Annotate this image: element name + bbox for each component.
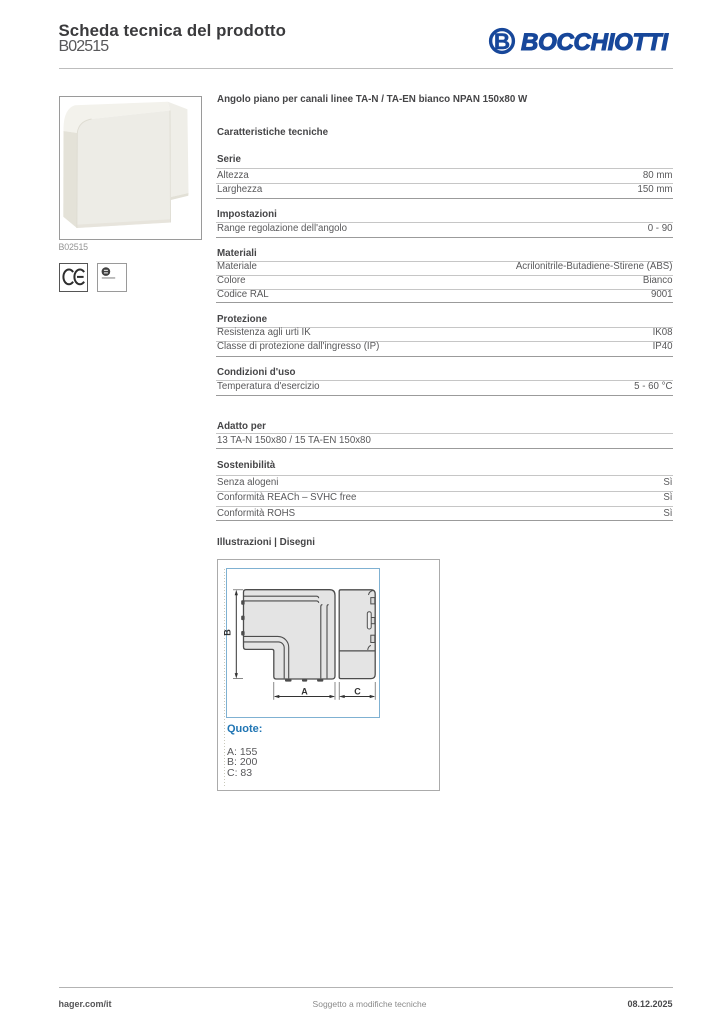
svg-text:A: A (301, 686, 308, 696)
svg-text:BOCCHIOTTI: BOCCHIOTTI (521, 29, 669, 56)
svg-text:B: B (494, 29, 510, 54)
svg-text:B: B (223, 629, 233, 636)
svg-text:C: C (354, 686, 361, 696)
